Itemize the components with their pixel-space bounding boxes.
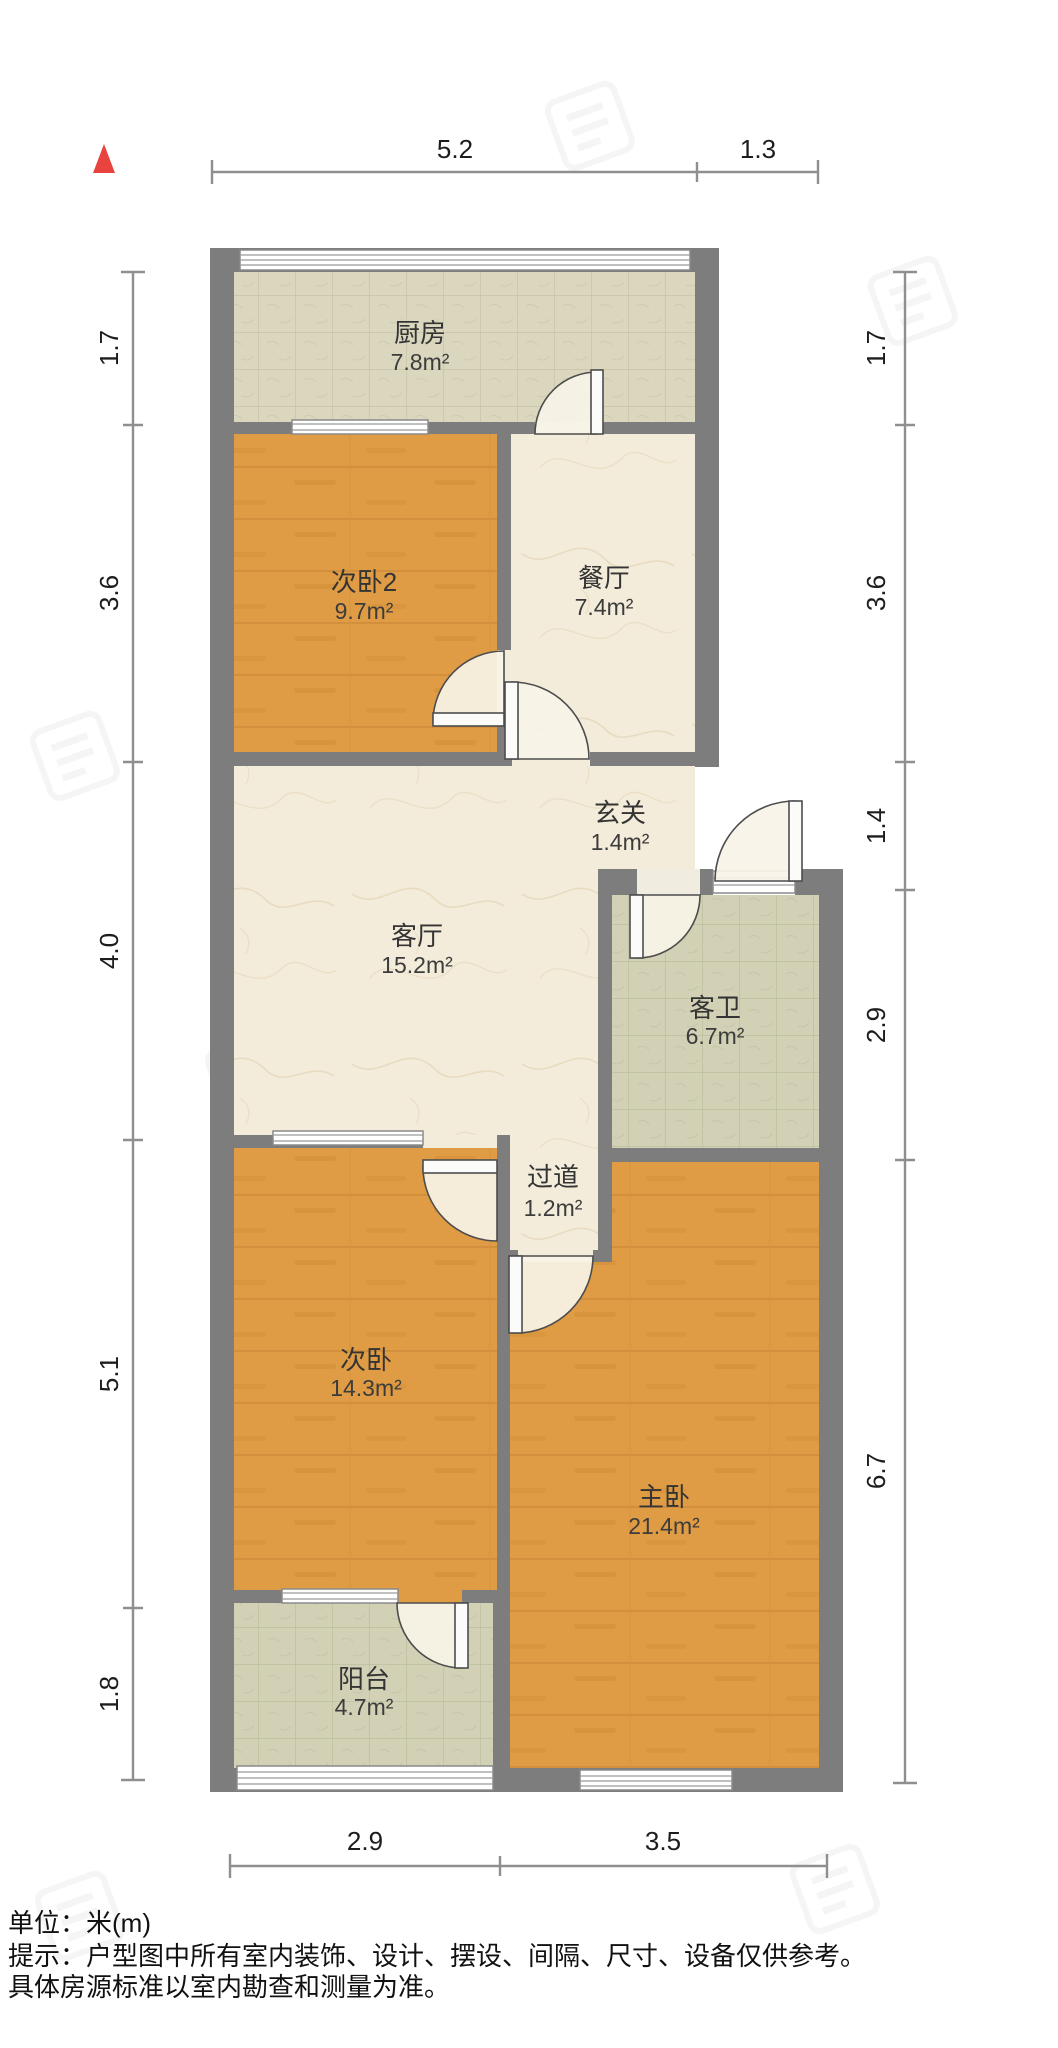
- room-balcony-area: 4.7m²: [335, 1694, 394, 1720]
- balcony-door-window: [282, 1589, 398, 1603]
- balcony-glazing: [237, 1766, 493, 1790]
- room-kitchen-area: 7.8m²: [391, 349, 450, 375]
- room-living-label: 客厅: [391, 921, 443, 951]
- dim-left-2: 3.6: [94, 575, 124, 611]
- unit-note: 单位：米(m): [8, 1908, 151, 1938]
- dim-right-3: 1.4: [861, 808, 891, 844]
- room-master-floor-upper: [612, 1162, 819, 1262]
- master-window: [580, 1770, 732, 1790]
- dim-right-1: 1.7: [861, 330, 891, 366]
- dim-left-5: 1.8: [94, 1676, 124, 1712]
- room-entry-label: 玄关: [594, 798, 646, 828]
- footer-notes: 单位：米(m) 提示：户型图中所有室内装饰、设计、摆设、间隔、尺寸、设备仅供参考…: [8, 1908, 866, 2002]
- bedroom2-window: [292, 420, 428, 434]
- room-dining-label: 餐厅: [578, 563, 630, 593]
- dim-right-2: 3.6: [861, 575, 891, 611]
- room-hallway-floor: [510, 1135, 598, 1250]
- room-bedroom-area: 14.3m²: [330, 1375, 402, 1401]
- room-balcony-label: 阳台: [338, 1664, 390, 1694]
- room-hallway-label: 过道: [527, 1162, 579, 1192]
- disclaimer-line2: 具体房源标准以室内勘查和测量为准。: [8, 1972, 450, 2002]
- main-entry-door: [715, 801, 802, 881]
- room-kitchen-label: 厨房: [394, 318, 446, 348]
- dim-bottom-1: 2.9: [347, 1826, 383, 1856]
- room-living-area: 15.2m²: [381, 952, 453, 978]
- room-bathroom-label: 客卫: [689, 993, 741, 1023]
- dim-bottom: 2.9 3.5: [230, 1826, 827, 1878]
- floorplan-canvas: 厨房 7.8m² 次卧2 9.7m² 餐厅 7.4m² 玄关 1.4m² 客厅 …: [0, 0, 1058, 2048]
- room-bedroom2-area: 9.7m²: [335, 598, 394, 624]
- room-master-area: 21.4m²: [628, 1513, 700, 1539]
- room-kitchen-floor: [234, 272, 695, 422]
- room-dining-area: 7.4m²: [575, 594, 634, 620]
- room-bedroom2-label: 次卧2: [331, 567, 397, 597]
- room-bedroom-label: 次卧: [340, 1345, 392, 1375]
- dim-top: 5.2 1.3: [212, 134, 818, 184]
- dim-left: 1.7 3.6 4.0 5.1 1.8: [94, 272, 145, 1780]
- north-compass-icon: [93, 144, 115, 173]
- dim-top-1: 5.2: [437, 134, 473, 164]
- kitchen-window: [240, 250, 690, 270]
- dim-left-1: 1.7: [94, 330, 124, 366]
- dim-left-4: 5.1: [94, 1356, 124, 1392]
- dim-top-2: 1.3: [740, 134, 776, 164]
- floorplan-page: 厨房 7.8m² 次卧2 9.7m² 餐厅 7.4m² 玄关 1.4m² 客厅 …: [0, 0, 1058, 2048]
- room-bathroom-area: 6.7m²: [686, 1023, 745, 1049]
- room-entry-area: 1.4m²: [591, 829, 650, 855]
- dim-right: 1.7 3.6 1.4 2.9 6.7: [861, 272, 917, 1783]
- room-master-label: 主卧: [638, 1482, 690, 1512]
- room-hallway-area: 1.2m²: [524, 1195, 583, 1221]
- dim-bottom-2: 3.5: [645, 1826, 681, 1856]
- dim-right-4: 2.9: [861, 1007, 891, 1043]
- dim-left-3: 4.0: [94, 933, 124, 969]
- room-living-floor: [234, 869, 598, 1135]
- dim-right-5: 6.7: [861, 1453, 891, 1489]
- disclaimer-line1: 提示：户型图中所有室内装饰、设计、摆设、间隔、尺寸、设备仅供参考。: [8, 1941, 866, 1971]
- bedroom-window: [273, 1131, 423, 1145]
